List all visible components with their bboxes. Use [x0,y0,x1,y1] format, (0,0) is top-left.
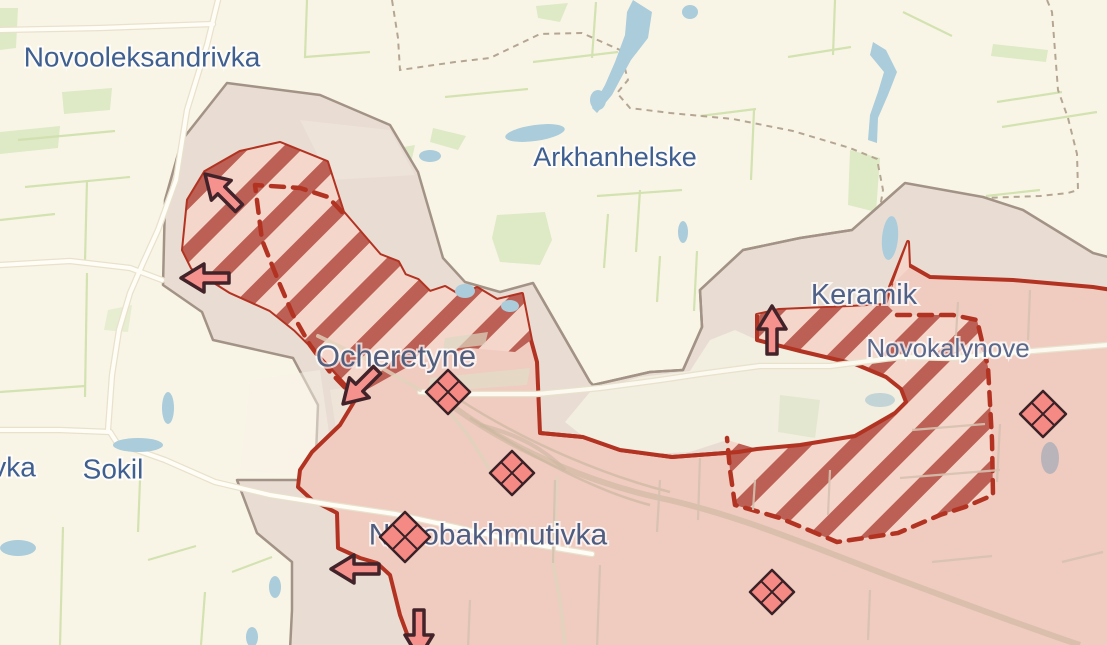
place-label-novokalynove: Novokalynove [866,333,1029,363]
map-canvas[interactable]: NovooleksandrivkaArkhanhelskeKeramikNovo… [0,0,1107,645]
place-label-keramik: Keramik [811,279,918,311]
place-label-novooleksandrivka: Novooleksandrivka [24,42,261,73]
place-label-arkhanhelske: Arkhanhelske [533,142,697,172]
map-viewport[interactable]: NovooleksandrivkaArkhanhelskeKeramikNovo… [0,0,1107,645]
place-label-ocheretyne: Ocheretyne [316,339,476,374]
place-label-sokil: Sokil [83,454,144,485]
place-label-vka: vka [0,452,36,483]
